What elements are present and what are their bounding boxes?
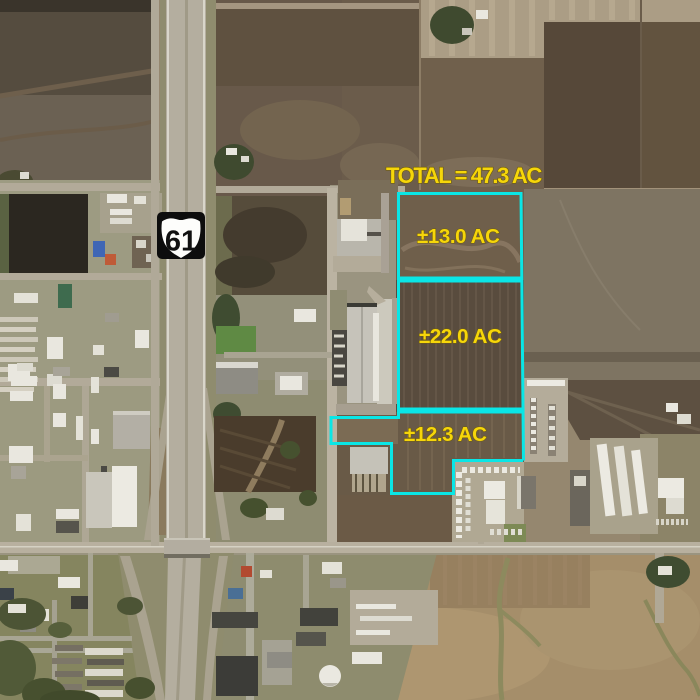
svg-text:±22.0 AC: ±22.0 AC bbox=[419, 325, 502, 348]
svg-text:±13.0 AC: ±13.0 AC bbox=[417, 225, 500, 248]
svg-text:61: 61 bbox=[165, 226, 197, 258]
svg-text:TOTAL = 47.3 AC: TOTAL = 47.3 AC bbox=[386, 163, 542, 188]
svg-text:±12.3 AC: ±12.3 AC bbox=[404, 423, 487, 446]
